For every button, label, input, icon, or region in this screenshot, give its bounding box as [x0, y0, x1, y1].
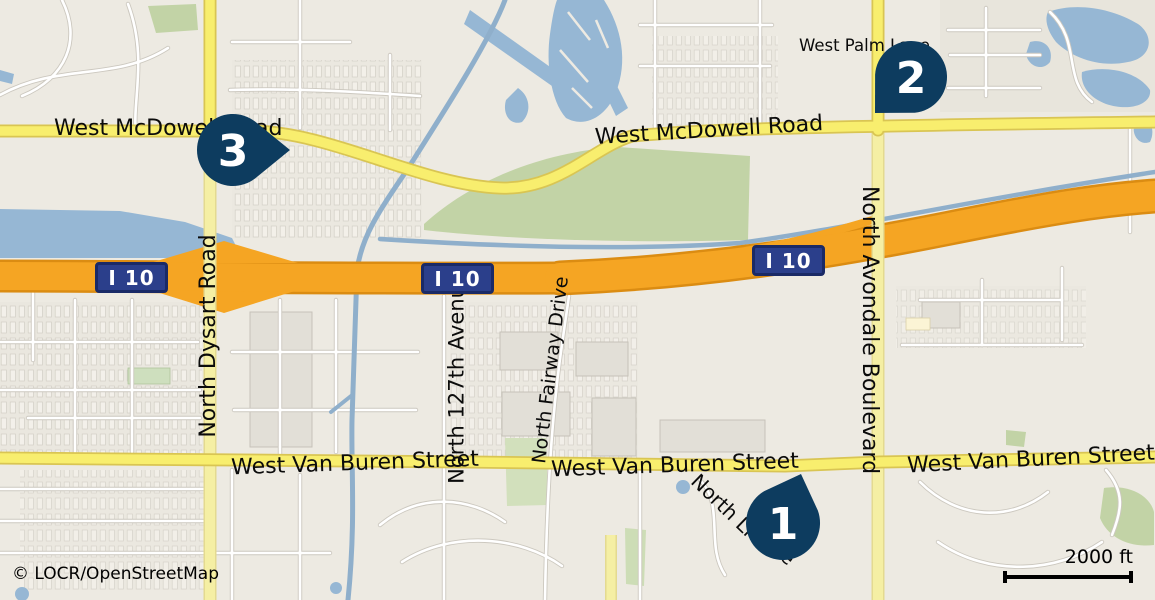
marker-number: 1 — [768, 503, 799, 547]
map-marker-1[interactable]: 1 — [744, 472, 824, 562]
interstate-10-shield-east: I 10 — [752, 245, 825, 276]
map-canvas[interactable]: West McDowell Road West McDowell Road We… — [0, 0, 1155, 600]
shield-label: I 10 — [434, 267, 480, 291]
scale-bar-label: 2000 ft — [1003, 546, 1133, 568]
interstate-10-shield-center: I 10 — [421, 263, 494, 294]
road-label-north-avondale-boulevard: North Avondale Boulevard — [858, 186, 880, 474]
map-terrain-layer — [0, 0, 1155, 600]
map-marker-2[interactable]: 2 — [873, 39, 949, 115]
interstate-10-shield-west: I 10 — [95, 262, 168, 293]
scale-bar-line — [1003, 571, 1133, 583]
scale-bar: 2000 ft — [1003, 546, 1133, 583]
road-label-north-dysart-road: North Dysart Road — [198, 234, 220, 437]
marker-number: 2 — [896, 57, 927, 101]
shield-label: I 10 — [108, 266, 154, 290]
map-attribution: © LOCR/OpenStreetMap — [12, 564, 219, 584]
shield-label: I 10 — [765, 249, 811, 273]
map-marker-3[interactable]: 3 — [195, 112, 295, 188]
marker-number: 3 — [218, 130, 249, 174]
